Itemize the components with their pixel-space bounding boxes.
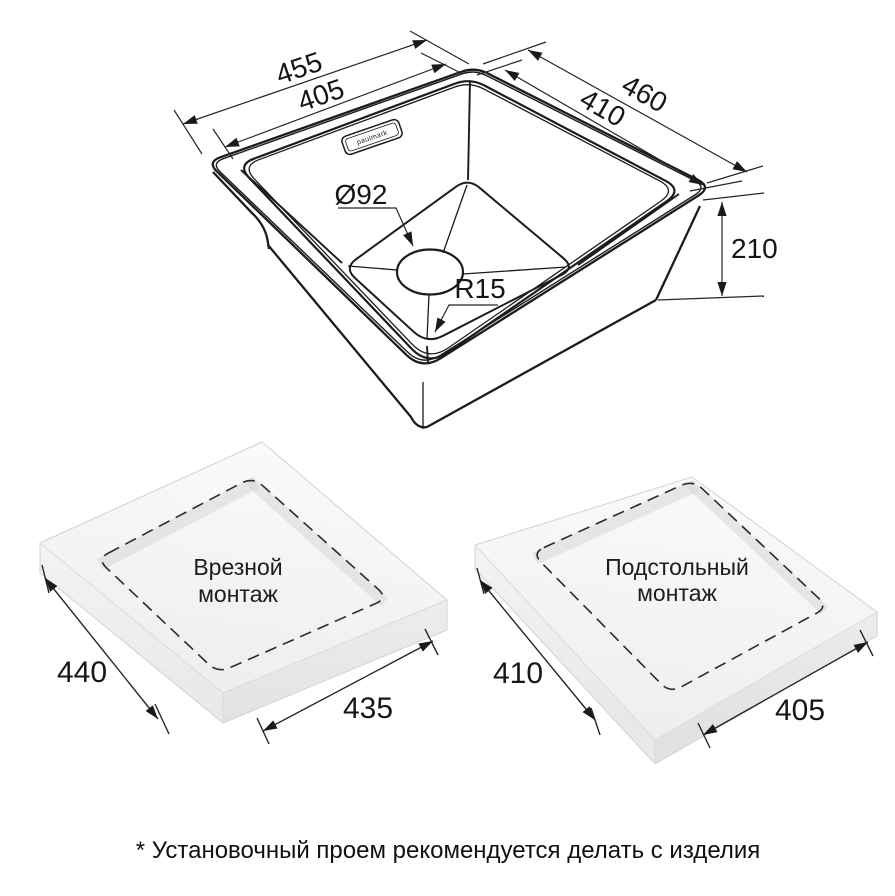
ext-line-455-right (410, 31, 469, 64)
crease-to-front (427, 294, 429, 339)
underbody-right-edge (656, 206, 700, 300)
inset-dim-side-label: 440 (57, 656, 107, 689)
inset-mount-diagram: Врезной монтаж 440 435 (40, 442, 447, 744)
underbody-bottom-left-edge (268, 245, 427, 427)
bowl-wall-edge-back (468, 81, 470, 180)
technical-drawing-canvas: paulmark 455 405 (0, 0, 895, 896)
crease-to-left (348, 266, 397, 270)
undermount-dim-front-label: 405 (775, 694, 825, 727)
ext-line-410-left (477, 60, 522, 75)
bowl-wall-edge-right (578, 194, 679, 265)
ext-line-455-left (174, 110, 202, 154)
ext-line-405-left (213, 129, 233, 159)
undermount-title-line2: монтаж (637, 580, 717, 606)
ext-line-460-left (483, 42, 546, 64)
underbody-bottom-right-edge (427, 300, 656, 427)
dim-line-410 (505, 70, 703, 185)
undermount-title-line1: Подстольный (605, 554, 749, 580)
inset-ext-side-bottom (155, 704, 169, 734)
undermount-dim-side-label: 410 (493, 657, 543, 690)
footnote-text: * Установочный проем рекомендуется делат… (136, 837, 761, 864)
ext-line-210-top (703, 193, 764, 200)
ext-line-460-right (707, 166, 763, 183)
dim-210-label: 210 (731, 233, 778, 264)
ext-line-210-bottom (658, 296, 764, 300)
bowl-wall-edge-front (427, 346, 428, 364)
corner-radius-label: R15 (454, 273, 505, 304)
sink-dimensions: 455 405 460 410 210 Ø92 R15 (174, 31, 778, 332)
crease-to-back (443, 185, 467, 253)
undermount-diagram: Подстольный монтаж 410 405 (475, 477, 877, 764)
inset-mount-title-line1: Врезной (193, 554, 282, 580)
undermount-ext-side-bottom (591, 708, 600, 735)
drain-diameter-label: Ø92 (335, 179, 388, 210)
inset-mount-title-line2: монтаж (198, 581, 278, 607)
inset-dim-front-label: 435 (343, 692, 393, 725)
drain-hole (397, 250, 463, 295)
sink-isometric-view: paulmark 455 405 (174, 31, 778, 429)
